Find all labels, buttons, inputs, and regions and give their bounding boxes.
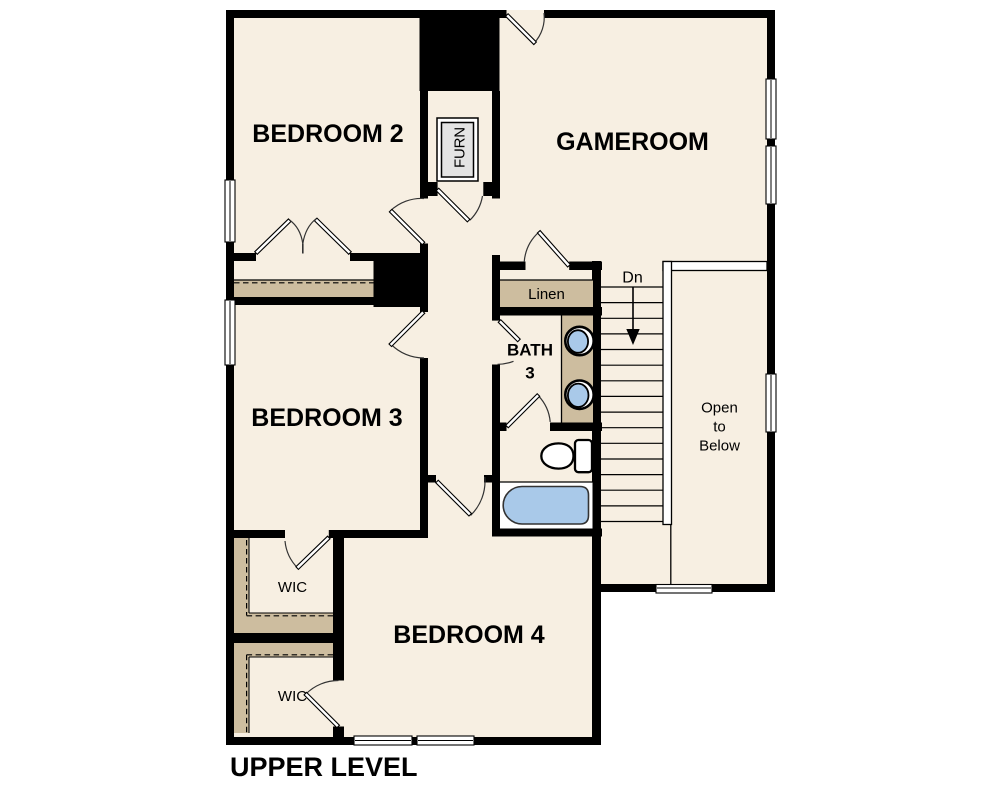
svg-text:BEDROOM 3: BEDROOM 3 (251, 404, 402, 432)
svg-text:BATH: BATH (507, 341, 553, 360)
svg-text:Dn: Dn (622, 270, 642, 287)
svg-text:Below: Below (699, 438, 740, 455)
svg-text:to: to (713, 419, 726, 436)
svg-text:Open: Open (701, 400, 738, 417)
svg-text:BEDROOM 4: BEDROOM 4 (393, 621, 545, 649)
svg-text:GAMEROOM: GAMEROOM (556, 128, 709, 156)
svg-text:BEDROOM 2: BEDROOM 2 (252, 120, 403, 148)
svg-text:UPPER LEVEL: UPPER LEVEL (230, 752, 418, 782)
svg-text:FURN: FURN (452, 127, 469, 168)
svg-text:3: 3 (525, 364, 534, 383)
svg-text:WIC: WIC (278, 579, 307, 596)
svg-text:WIC: WIC (278, 688, 307, 705)
svg-text:Linen: Linen (528, 286, 565, 303)
